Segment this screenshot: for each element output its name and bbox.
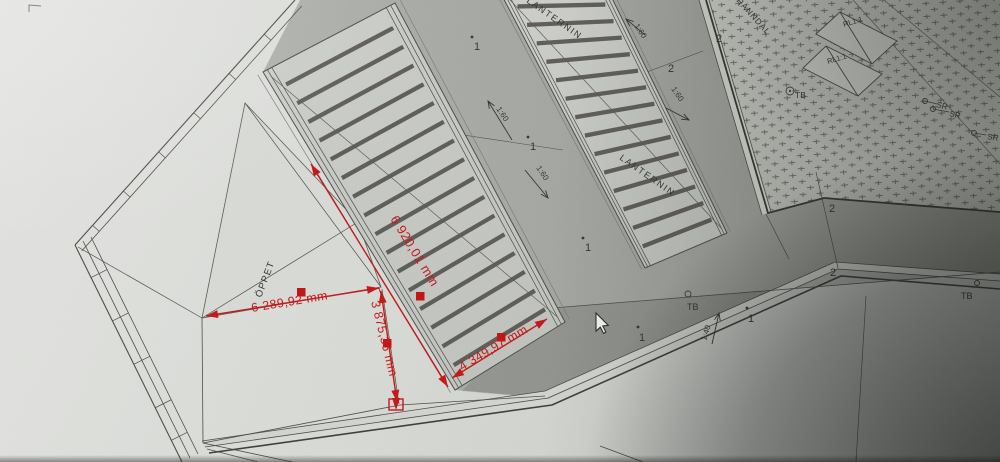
roof-plan-drawing[interactable]: ÖPPET LANTERNIN LANTERNIN RÄNNDAL RL1:1 … xyxy=(0,0,1000,462)
photo-noise xyxy=(0,0,1000,462)
drawing-viewport[interactable]: ÖPPET LANTERNIN LANTERNIN RÄNNDAL RL1:1 … xyxy=(0,0,1000,462)
